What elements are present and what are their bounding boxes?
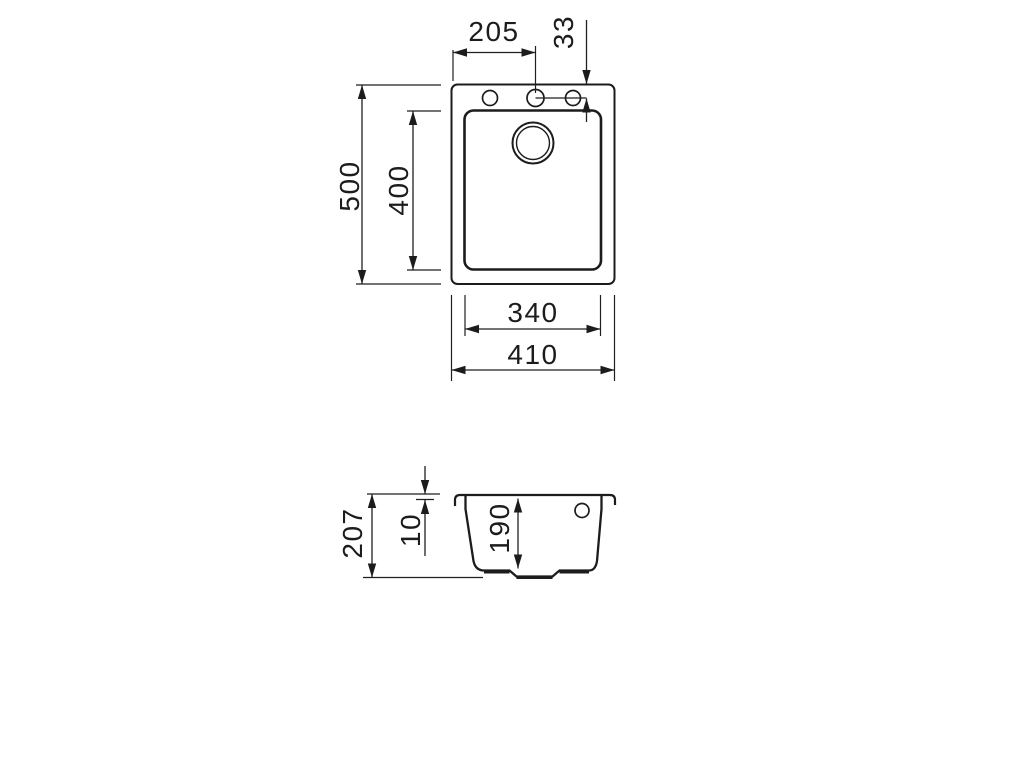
section-rim-profile [455, 495, 615, 506]
top-view: 205 33 500 400 340 410 [334, 15, 615, 381]
section-view: 207 10 190 [337, 466, 615, 578]
sink-dimension-drawing: 205 33 500 400 340 410 [0, 0, 1024, 768]
drain-circle-inner [517, 127, 550, 160]
dim-label-340: 340 [507, 297, 558, 328]
dim-label-33: 33 [548, 15, 579, 49]
sink-outer-rim [452, 85, 615, 285]
section-bottom-thickness [484, 573, 589, 579]
sink-bowl-opening [465, 111, 602, 270]
drain-circle-outer [513, 123, 554, 164]
dim-label-10: 10 [395, 513, 426, 547]
tap-hole-left [483, 91, 498, 106]
overflow-hole [575, 504, 589, 518]
technical-drawing-svg: 205 33 500 400 340 410 [0, 0, 1024, 768]
dim-label-207: 207 [337, 507, 368, 558]
dim-label-410: 410 [507, 339, 558, 370]
dim-label-500: 500 [334, 160, 365, 211]
dim-label-400: 400 [383, 164, 414, 215]
dim-label-205: 205 [468, 16, 519, 47]
dim-label-190: 190 [484, 502, 515, 553]
